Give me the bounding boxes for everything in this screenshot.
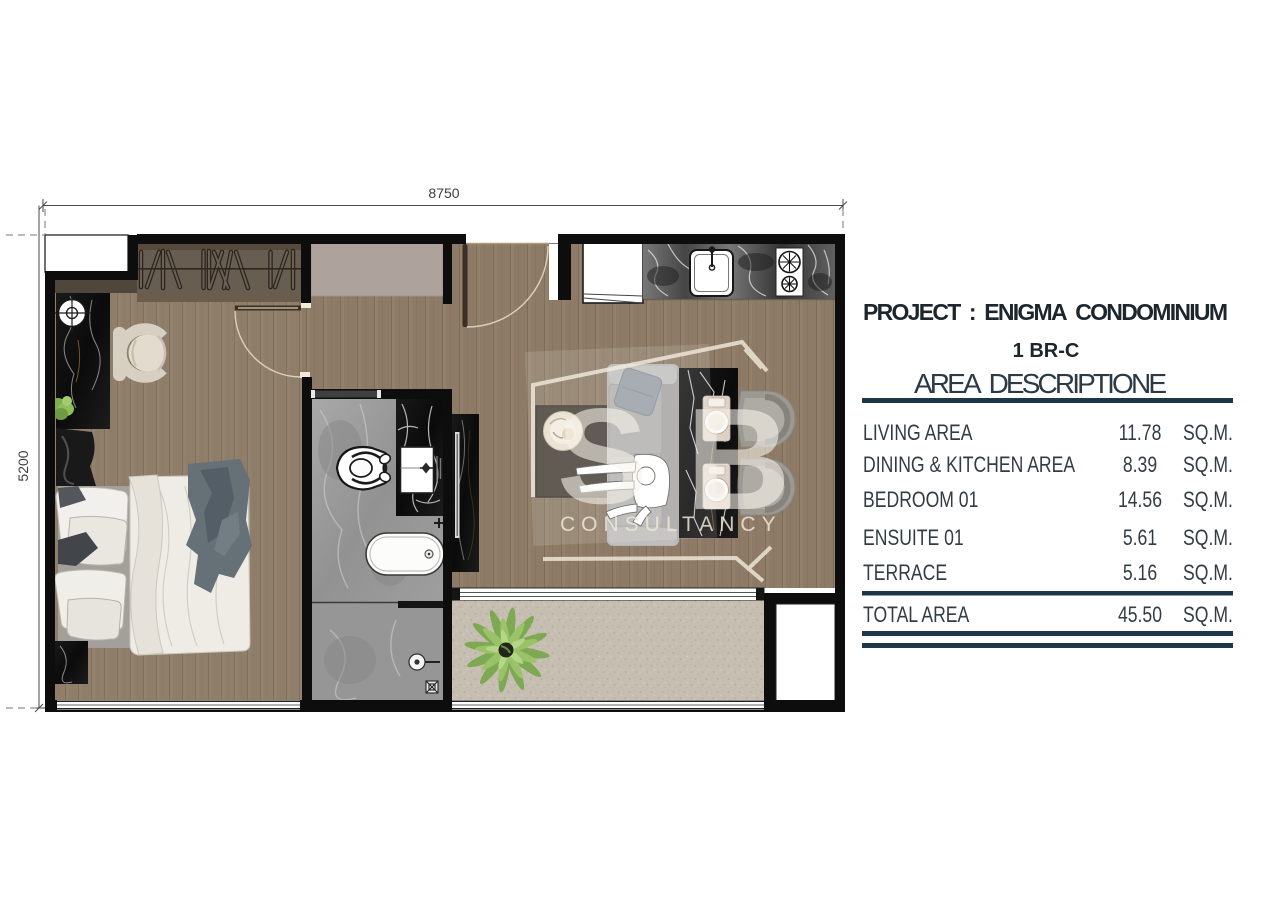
svg-text:SQ.M.: SQ.M. xyxy=(1183,488,1233,512)
svg-text:SQ.M.: SQ.M. xyxy=(1183,453,1233,477)
svg-text:14.56: 14.56 xyxy=(1118,488,1162,512)
svg-text:S: S xyxy=(557,380,648,532)
svg-text:TERRACE: TERRACE xyxy=(863,561,947,585)
svg-text:5.16: 5.16 xyxy=(1123,561,1157,585)
svg-text:CONSULTANCY: CONSULTANCY xyxy=(560,513,782,536)
svg-text:8750: 8750 xyxy=(428,185,459,201)
svg-text:SQ.M.: SQ.M. xyxy=(1183,561,1233,585)
svg-text:DINING & KITCHEN AREA: DINING & KITCHEN AREA xyxy=(863,453,1076,477)
svg-text:SQ.M.: SQ.M. xyxy=(1183,421,1233,445)
svg-text:TOTAL AREA: TOTAL AREA xyxy=(863,603,970,627)
svg-text:SQ.M.: SQ.M. xyxy=(1183,526,1233,550)
svg-text:BEDROOM 01: BEDROOM 01 xyxy=(863,488,978,512)
svg-text:8.39: 8.39 xyxy=(1123,453,1157,477)
svg-text:5200: 5200 xyxy=(15,450,31,481)
svg-text:LIVING AREA: LIVING AREA xyxy=(863,421,973,445)
svg-text:ENSUITE 01: ENSUITE 01 xyxy=(863,526,964,550)
svg-text:45.50: 45.50 xyxy=(1118,603,1162,627)
svg-text:AREA DESCRIPTIONE: AREA DESCRIPTIONE xyxy=(914,368,1167,399)
svg-text:1 BR-C: 1 BR-C xyxy=(1013,340,1080,362)
svg-text:11.78: 11.78 xyxy=(1119,421,1162,445)
svg-text:PROJECT : ENIGMA CONDOMINIU: PROJECT : ENIGMA CONDOMINIUM xyxy=(863,299,1228,325)
svg-text:5.61: 5.61 xyxy=(1123,526,1157,550)
svg-text:SQ.M.: SQ.M. xyxy=(1183,603,1233,627)
